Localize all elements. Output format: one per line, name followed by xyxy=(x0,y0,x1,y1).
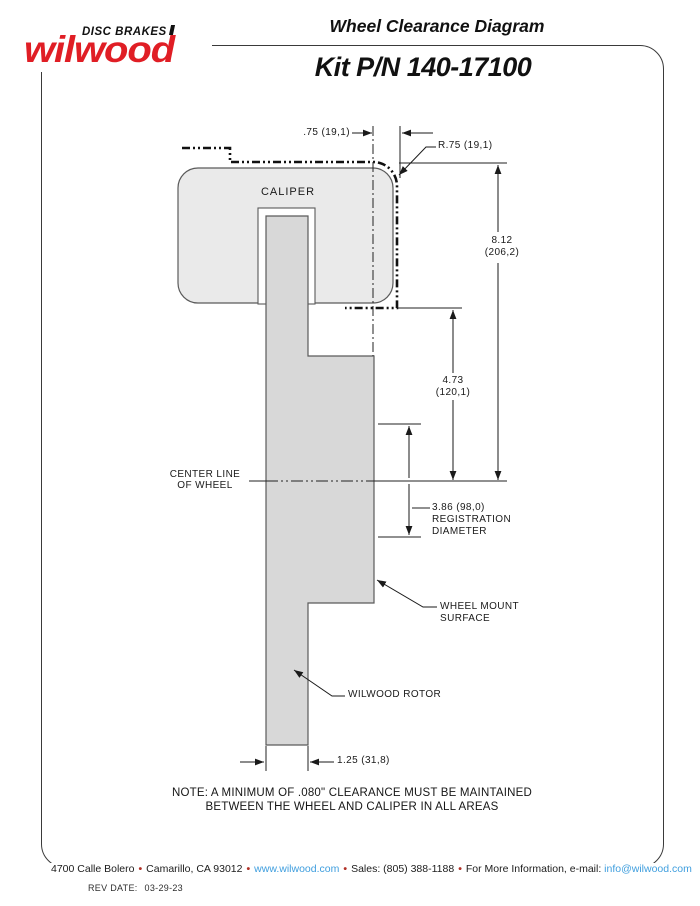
footer-separator: • xyxy=(246,863,250,875)
overall-height-mm: (206,2) xyxy=(474,247,530,259)
footer-info-prefix: For More Information, e-mail: xyxy=(466,863,601,875)
revision-date-value: 03-29-23 xyxy=(145,883,183,893)
footer-website-link[interactable]: www.wilwood.com xyxy=(254,863,339,875)
overall-height-dimension: 8.12 (206,2) xyxy=(474,235,530,259)
footer-contact-line: 4700 Calle Bolero•Camarillo, CA 93012•ww… xyxy=(41,863,700,875)
footer-address: 4700 Calle Bolero xyxy=(51,863,134,875)
clearance-note-line1: NOTE: A MINIMUM OF .080" CLEARANCE MUST … xyxy=(172,787,532,799)
centerline-label-line1: CENTER LINE xyxy=(160,469,250,480)
wheel-mount-line2: SURFACE xyxy=(440,613,519,625)
wheel-mount-line1: WHEEL MOUNT xyxy=(440,601,519,613)
page: DISC BRAKES wilwood Wheel Clearance Diag… xyxy=(0,0,700,906)
clearance-note: NOTE: A MINIMUM OF .080" CLEARANCE MUST … xyxy=(41,786,663,814)
rotor-width-dimension: 1.25 (31,8) xyxy=(337,755,390,767)
wheel-mount-surface-label: WHEEL MOUNT SURFACE xyxy=(440,601,519,625)
footer-separator: • xyxy=(343,863,347,875)
footer-separator: • xyxy=(138,863,142,875)
footer-city: Camarillo, CA 93012 xyxy=(146,863,242,875)
footer-sales-phone: Sales: (805) 388-1188 xyxy=(351,863,454,875)
registration-dimension: 3.86 (98,0) xyxy=(432,502,511,514)
registration-label-line2: DIAMETER xyxy=(432,526,511,538)
revision-date: REV DATE:03-29-23 xyxy=(88,883,183,893)
wheel-mount-leader xyxy=(377,580,437,607)
overall-height-in: 8.12 xyxy=(474,235,530,247)
footer-separator: • xyxy=(458,863,462,875)
logo-wordmark: wilwood xyxy=(24,30,174,70)
centerline-label-line2: OF WHEEL xyxy=(160,480,250,491)
clearance-note-line2: BETWEEN THE WHEEL AND CALIPER IN ALL ARE… xyxy=(205,801,498,813)
caliper-label: CALIPER xyxy=(243,186,333,198)
wheel-centerline-label: CENTER LINE OF WHEEL xyxy=(160,469,250,491)
page-title: Wheel Clearance Diagram xyxy=(276,16,598,37)
footer: 4700 Calle Bolero•Camarillo, CA 93012•ww… xyxy=(41,859,663,877)
caliper-to-centerline-in: 4.73 xyxy=(425,375,481,387)
kit-part-number: Kit P/N 140-17100 xyxy=(273,52,573,83)
wheel-clearance-drawing xyxy=(0,0,700,906)
caliper-clearance-dimension: .75 (19,1) xyxy=(278,127,350,139)
footer-email-link[interactable]: info@wilwood.com xyxy=(604,863,692,875)
corner-radius-dimension: R.75 (19,1) xyxy=(438,140,492,152)
caliper-to-centerline-dimension: 4.73 (120,1) xyxy=(425,375,481,399)
caliper-to-centerline-mm: (120,1) xyxy=(425,387,481,399)
wilwood-logo: DISC BRAKES wilwood xyxy=(22,24,212,72)
rotor-label: WILWOOD ROTOR xyxy=(348,689,441,701)
registration-diameter-label: 3.86 (98,0) REGISTRATION DIAMETER xyxy=(432,502,511,538)
revision-date-label: REV DATE: xyxy=(88,883,138,893)
registration-label-line1: REGISTRATION xyxy=(432,514,511,526)
radius-leader xyxy=(399,147,436,175)
